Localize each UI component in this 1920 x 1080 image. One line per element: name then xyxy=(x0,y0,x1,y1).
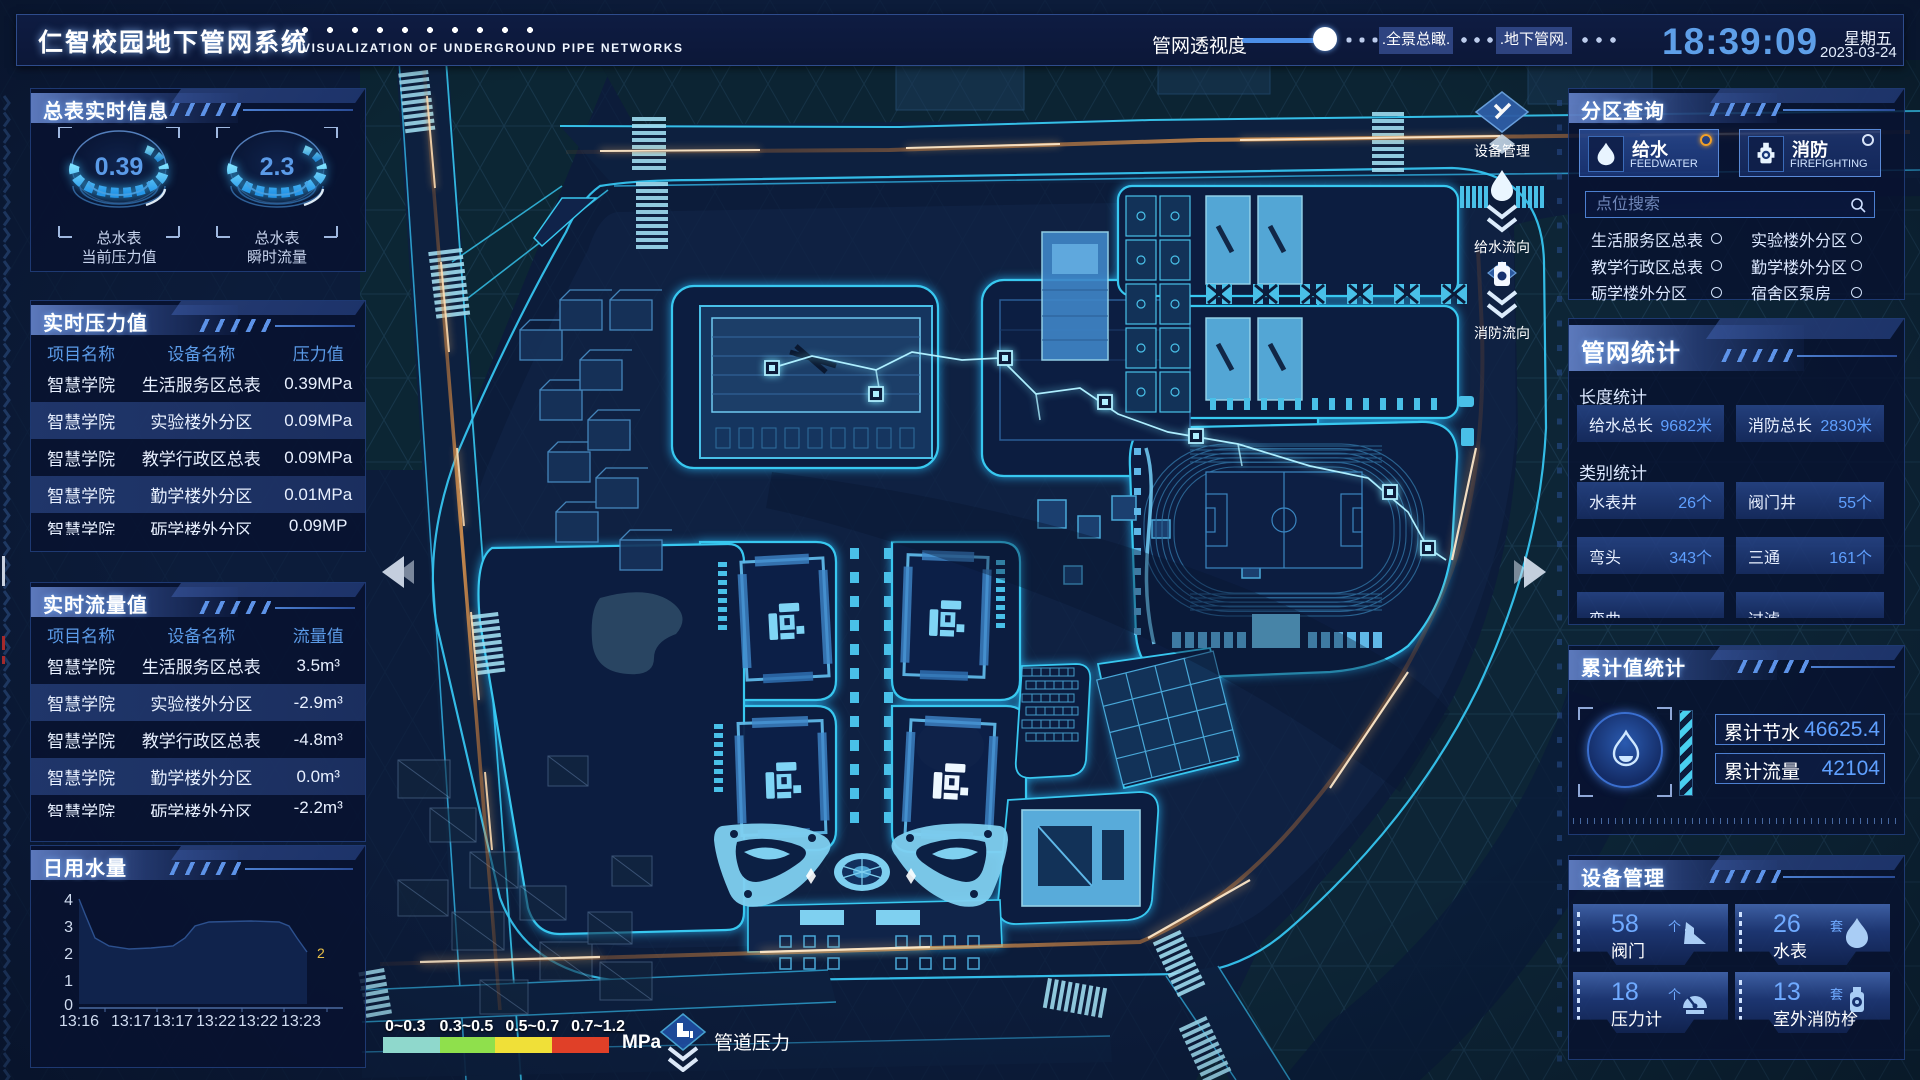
svg-text:13:22: 13:22 xyxy=(196,1013,236,1030)
svg-text:13:17: 13:17 xyxy=(153,1013,193,1030)
svg-text:13:22: 13:22 xyxy=(238,1013,278,1030)
svg-text:2: 2 xyxy=(64,946,73,963)
svg-text:13:23: 13:23 xyxy=(281,1013,321,1030)
svg-text:2: 2 xyxy=(317,945,325,961)
svg-text:消防流向: 消防流向 xyxy=(1474,325,1530,341)
svg-text:2.3: 2.3 xyxy=(260,153,295,181)
svg-text:0.39: 0.39 xyxy=(95,153,144,181)
svg-text:13:17: 13:17 xyxy=(111,1013,151,1030)
svg-text:设备管理: 设备管理 xyxy=(1474,143,1530,159)
svg-text:瞬时流量: 瞬时流量 xyxy=(247,249,307,266)
svg-text:0: 0 xyxy=(64,997,73,1014)
svg-text:给水流向: 给水流向 xyxy=(1474,239,1530,255)
svg-text:总水表: 总水表 xyxy=(254,230,299,247)
svg-text:4: 4 xyxy=(64,892,73,909)
svg-text:总水表: 总水表 xyxy=(96,230,141,247)
svg-text:1: 1 xyxy=(64,973,73,990)
svg-text:当前压力值: 当前压力值 xyxy=(81,249,156,266)
svg-text:3: 3 xyxy=(64,919,73,936)
svg-text:13:16: 13:16 xyxy=(59,1013,99,1030)
